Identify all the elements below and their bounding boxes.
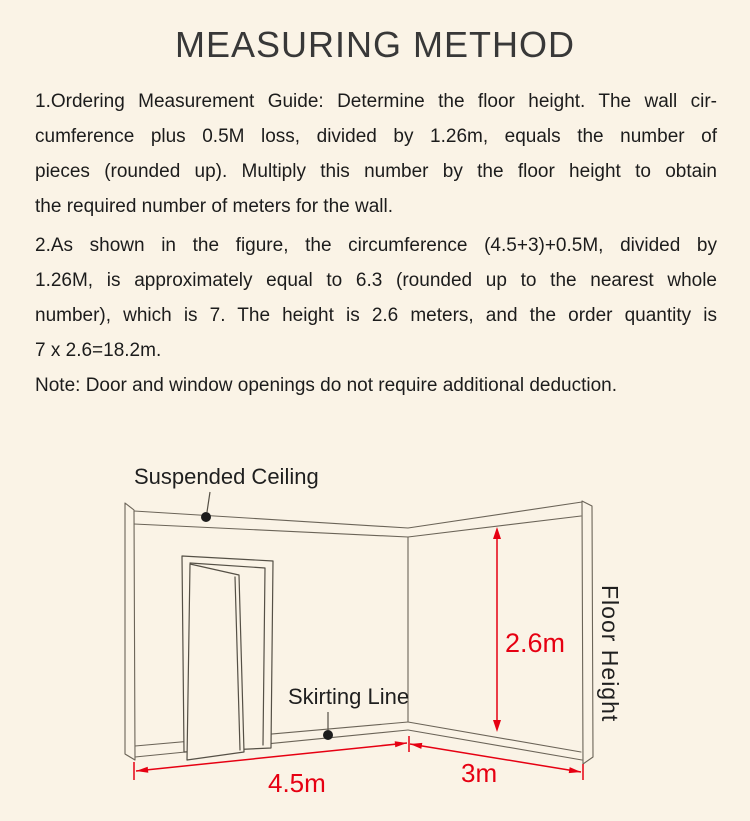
measuring-method-infographic: MEASURING METHOD 1.Ordering Measurement … [0, 0, 750, 821]
left-wall-length-value: 4.5m [268, 768, 326, 799]
right-wall-post [582, 501, 593, 764]
skirting-right-bottom [408, 730, 582, 760]
height-arrow-bottom [493, 720, 501, 732]
floor-height-label: Floor Height [596, 585, 623, 722]
ceiling-line-bottom [134, 516, 581, 537]
ceiling-leader-line [207, 492, 210, 512]
suspended-ceiling-label: Suspended Ceiling [134, 464, 319, 490]
wall-height-value: 2.6m [505, 628, 565, 659]
ceiling-dot [201, 512, 211, 522]
left-width-arrow-left [136, 767, 148, 773]
door-group [182, 556, 273, 760]
height-arrow-top [493, 527, 501, 539]
left-width-arrow-right [395, 741, 407, 747]
right-wall-length-value: 3m [461, 758, 497, 789]
skirting-line-label: Skirting Line [288, 684, 409, 710]
skirting-dot [323, 730, 333, 740]
room-diagram: Suspended Ceiling Skirting Line Floor He… [0, 430, 750, 821]
left-wall-post [125, 503, 135, 760]
